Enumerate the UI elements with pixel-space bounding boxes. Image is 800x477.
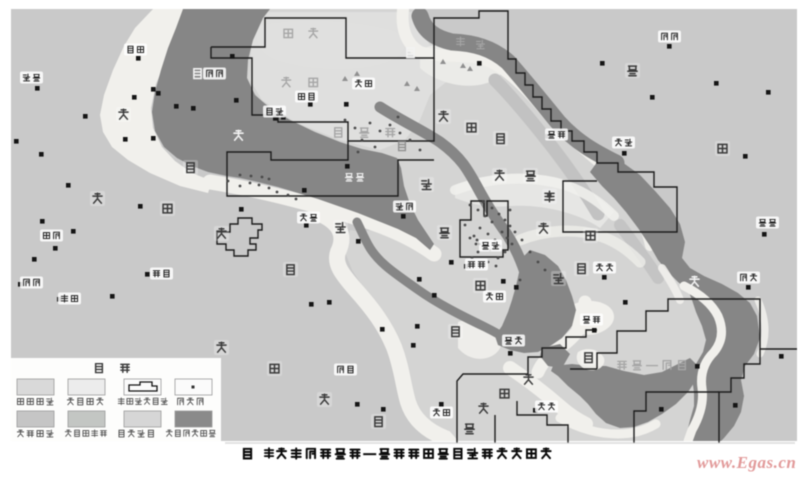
svg-text:www.Egas.cn: www.Egas.cn [697, 453, 796, 472]
